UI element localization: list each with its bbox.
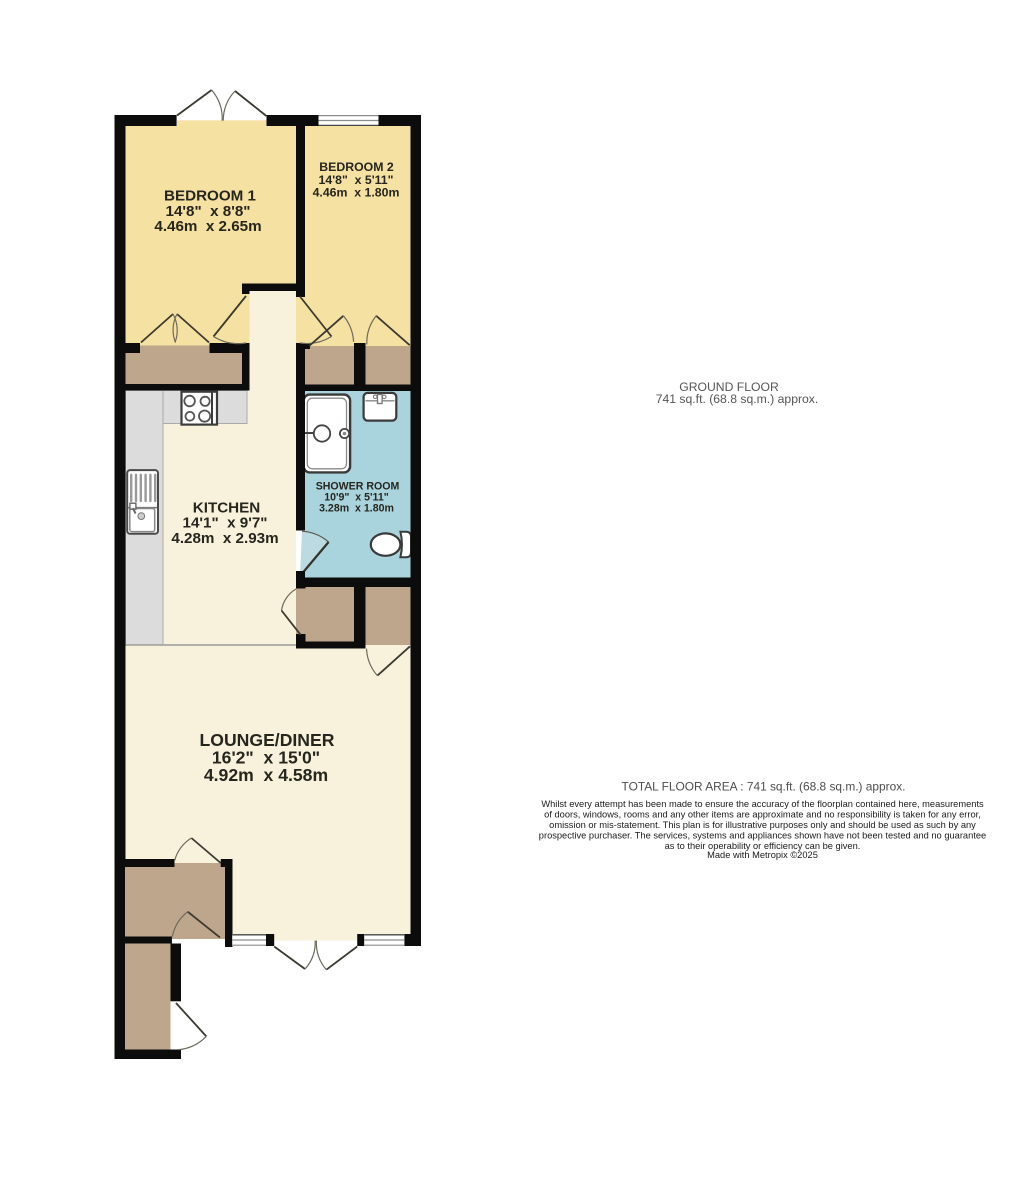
svg-text:4.28m x 2.93m: 4.28m x 2.93m [171,530,278,547]
svg-text:omission or mis-statement. Thi: omission or mis-statement. This plan is … [549,820,976,830]
svg-text:4.92m x 4.58m: 4.92m x 4.58m [204,765,328,785]
svg-text:741 sq.ft. (68.8 sq.m.) approx: 741 sq.ft. (68.8 sq.m.) approx. [656,392,819,406]
svg-text:4.46m x 2.65m: 4.46m x 2.65m [154,218,261,235]
svg-text:of doors, windows, rooms and a: of doors, windows, rooms and any other i… [544,810,981,820]
svg-text:Whilst every attempt has been: Whilst every attempt has been made to en… [541,799,984,809]
svg-text:Made with Metropix ©2025: Made with Metropix ©2025 [707,850,818,860]
svg-text:prospective purchaser. The ser: prospective purchaser. The services, sys… [539,831,986,841]
svg-text:14'1" x 9'7": 14'1" x 9'7" [183,514,268,531]
svg-text:3.28m x 1.80m: 3.28m x 1.80m [319,503,394,515]
svg-text:TOTAL FLOOR AREA : 741 sq.ft.: TOTAL FLOOR AREA : 741 sq.ft. (68.8 sq.m… [622,780,906,794]
svg-text:4.46m x 1.80m: 4.46m x 1.80m [313,186,400,200]
